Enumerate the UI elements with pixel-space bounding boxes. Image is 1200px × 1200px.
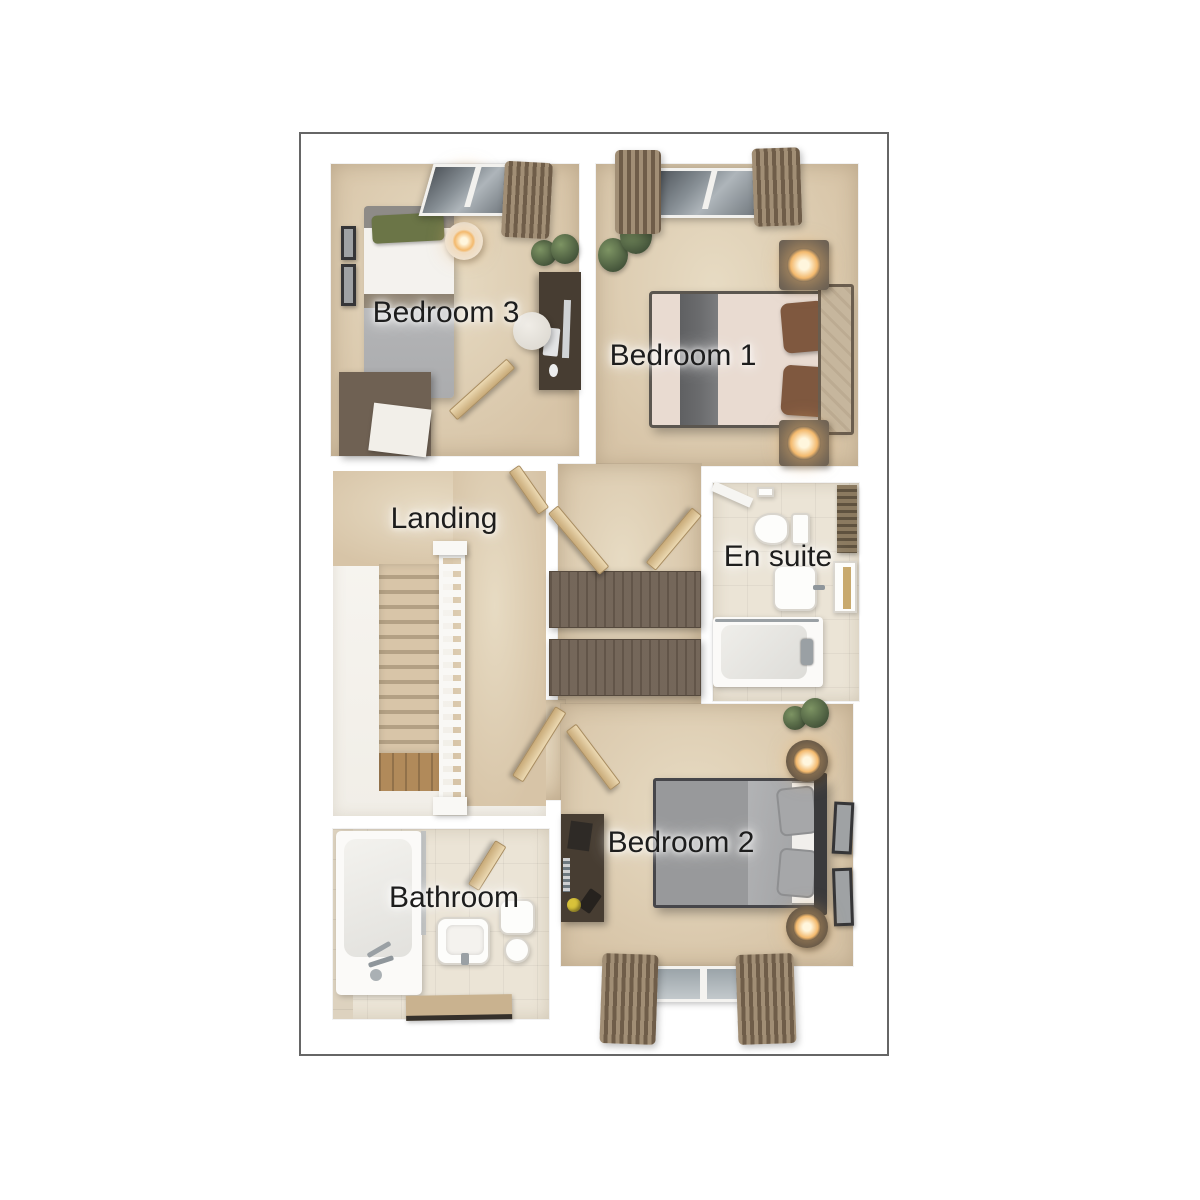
nightstand	[786, 906, 828, 948]
tap	[368, 955, 394, 968]
vanity-wood	[843, 567, 851, 609]
room-en-suite	[713, 483, 859, 701]
curtain-icon	[735, 953, 796, 1045]
picture-art	[835, 805, 851, 852]
yellow-object	[567, 898, 581, 912]
room-label-en-suite: En suite	[724, 542, 832, 572]
staircase-lower-steps	[379, 753, 441, 791]
bed-headboard	[814, 773, 827, 915]
keyboard-icon	[563, 858, 570, 892]
basin-tap	[813, 585, 825, 590]
door-open	[711, 481, 753, 507]
wardrobe	[549, 639, 701, 696]
bath	[713, 617, 823, 687]
picture-frame-icon	[832, 868, 854, 927]
picture-art	[344, 229, 353, 257]
curtain-icon	[752, 147, 803, 227]
floorplan-frame: Bedroom 3 Bedroom 1 Landing En suite Bat…	[299, 132, 889, 1056]
window-mullion	[700, 969, 707, 999]
picture-art	[835, 871, 851, 923]
plant-leaves	[801, 698, 829, 728]
floorplan-canvas: Bedroom 3 Bedroom 1 Landing En suite Bat…	[0, 0, 1200, 1200]
lamp-icon	[793, 913, 821, 941]
dresser-top-panel	[368, 403, 431, 458]
picture-frame-icon	[341, 264, 356, 306]
bath-mat	[406, 994, 512, 1021]
shower-rail	[715, 619, 819, 622]
nightstand	[779, 240, 829, 290]
nightstand	[786, 740, 828, 782]
curtain-icon	[615, 150, 661, 234]
toilet-base	[504, 937, 530, 963]
wall-cabinet	[757, 487, 774, 497]
laptop-icon	[567, 821, 593, 852]
room-label-bedroom-2: Bedroom 2	[608, 828, 755, 858]
window-mullion	[464, 167, 481, 207]
grey-pillow	[776, 847, 818, 898]
room-label-bedroom-3: Bedroom 3	[373, 298, 520, 328]
green-pillow	[371, 212, 444, 244]
bath-interior	[721, 625, 807, 679]
lamp-icon	[793, 747, 821, 775]
vanity-unit	[833, 561, 857, 613]
basin-tap	[461, 953, 469, 965]
tap-handle	[370, 969, 382, 981]
bed-headboard	[818, 284, 854, 435]
plant-icon	[783, 698, 829, 740]
nightstand	[779, 420, 829, 466]
plant-icon	[531, 234, 579, 278]
monitor-icon	[562, 300, 571, 358]
dresser	[339, 372, 431, 456]
bath-taps	[801, 639, 813, 665]
room-label-landing: Landing	[391, 504, 498, 534]
lamp-icon	[787, 248, 821, 282]
bath-taps	[364, 943, 398, 983]
picture-frame-icon	[832, 802, 855, 855]
room-label-bedroom-1: Bedroom 1	[610, 341, 757, 371]
lamp-icon	[787, 426, 821, 460]
grey-pillow	[776, 785, 819, 837]
banister-post	[433, 541, 467, 555]
room-bathroom	[333, 829, 549, 1019]
banister-post	[433, 797, 467, 815]
desk	[561, 814, 604, 922]
speaker-icon	[578, 888, 602, 914]
room-label-bathroom: Bathroom	[389, 883, 519, 913]
basin-bowl	[446, 925, 484, 955]
wardrobe	[549, 571, 701, 628]
staircase	[379, 564, 441, 753]
window-mullion	[702, 171, 717, 209]
slatted-shelf	[837, 485, 857, 553]
plant-leaves	[551, 234, 579, 264]
basin-icon	[436, 917, 490, 965]
lamp-icon	[452, 229, 476, 253]
picture-art	[344, 267, 353, 303]
curtain-icon	[501, 161, 553, 239]
curtain-icon	[599, 953, 658, 1045]
picture-frame-icon	[341, 226, 356, 260]
banister	[439, 551, 465, 803]
bedside-table	[445, 222, 483, 260]
mouse-icon	[549, 364, 558, 377]
